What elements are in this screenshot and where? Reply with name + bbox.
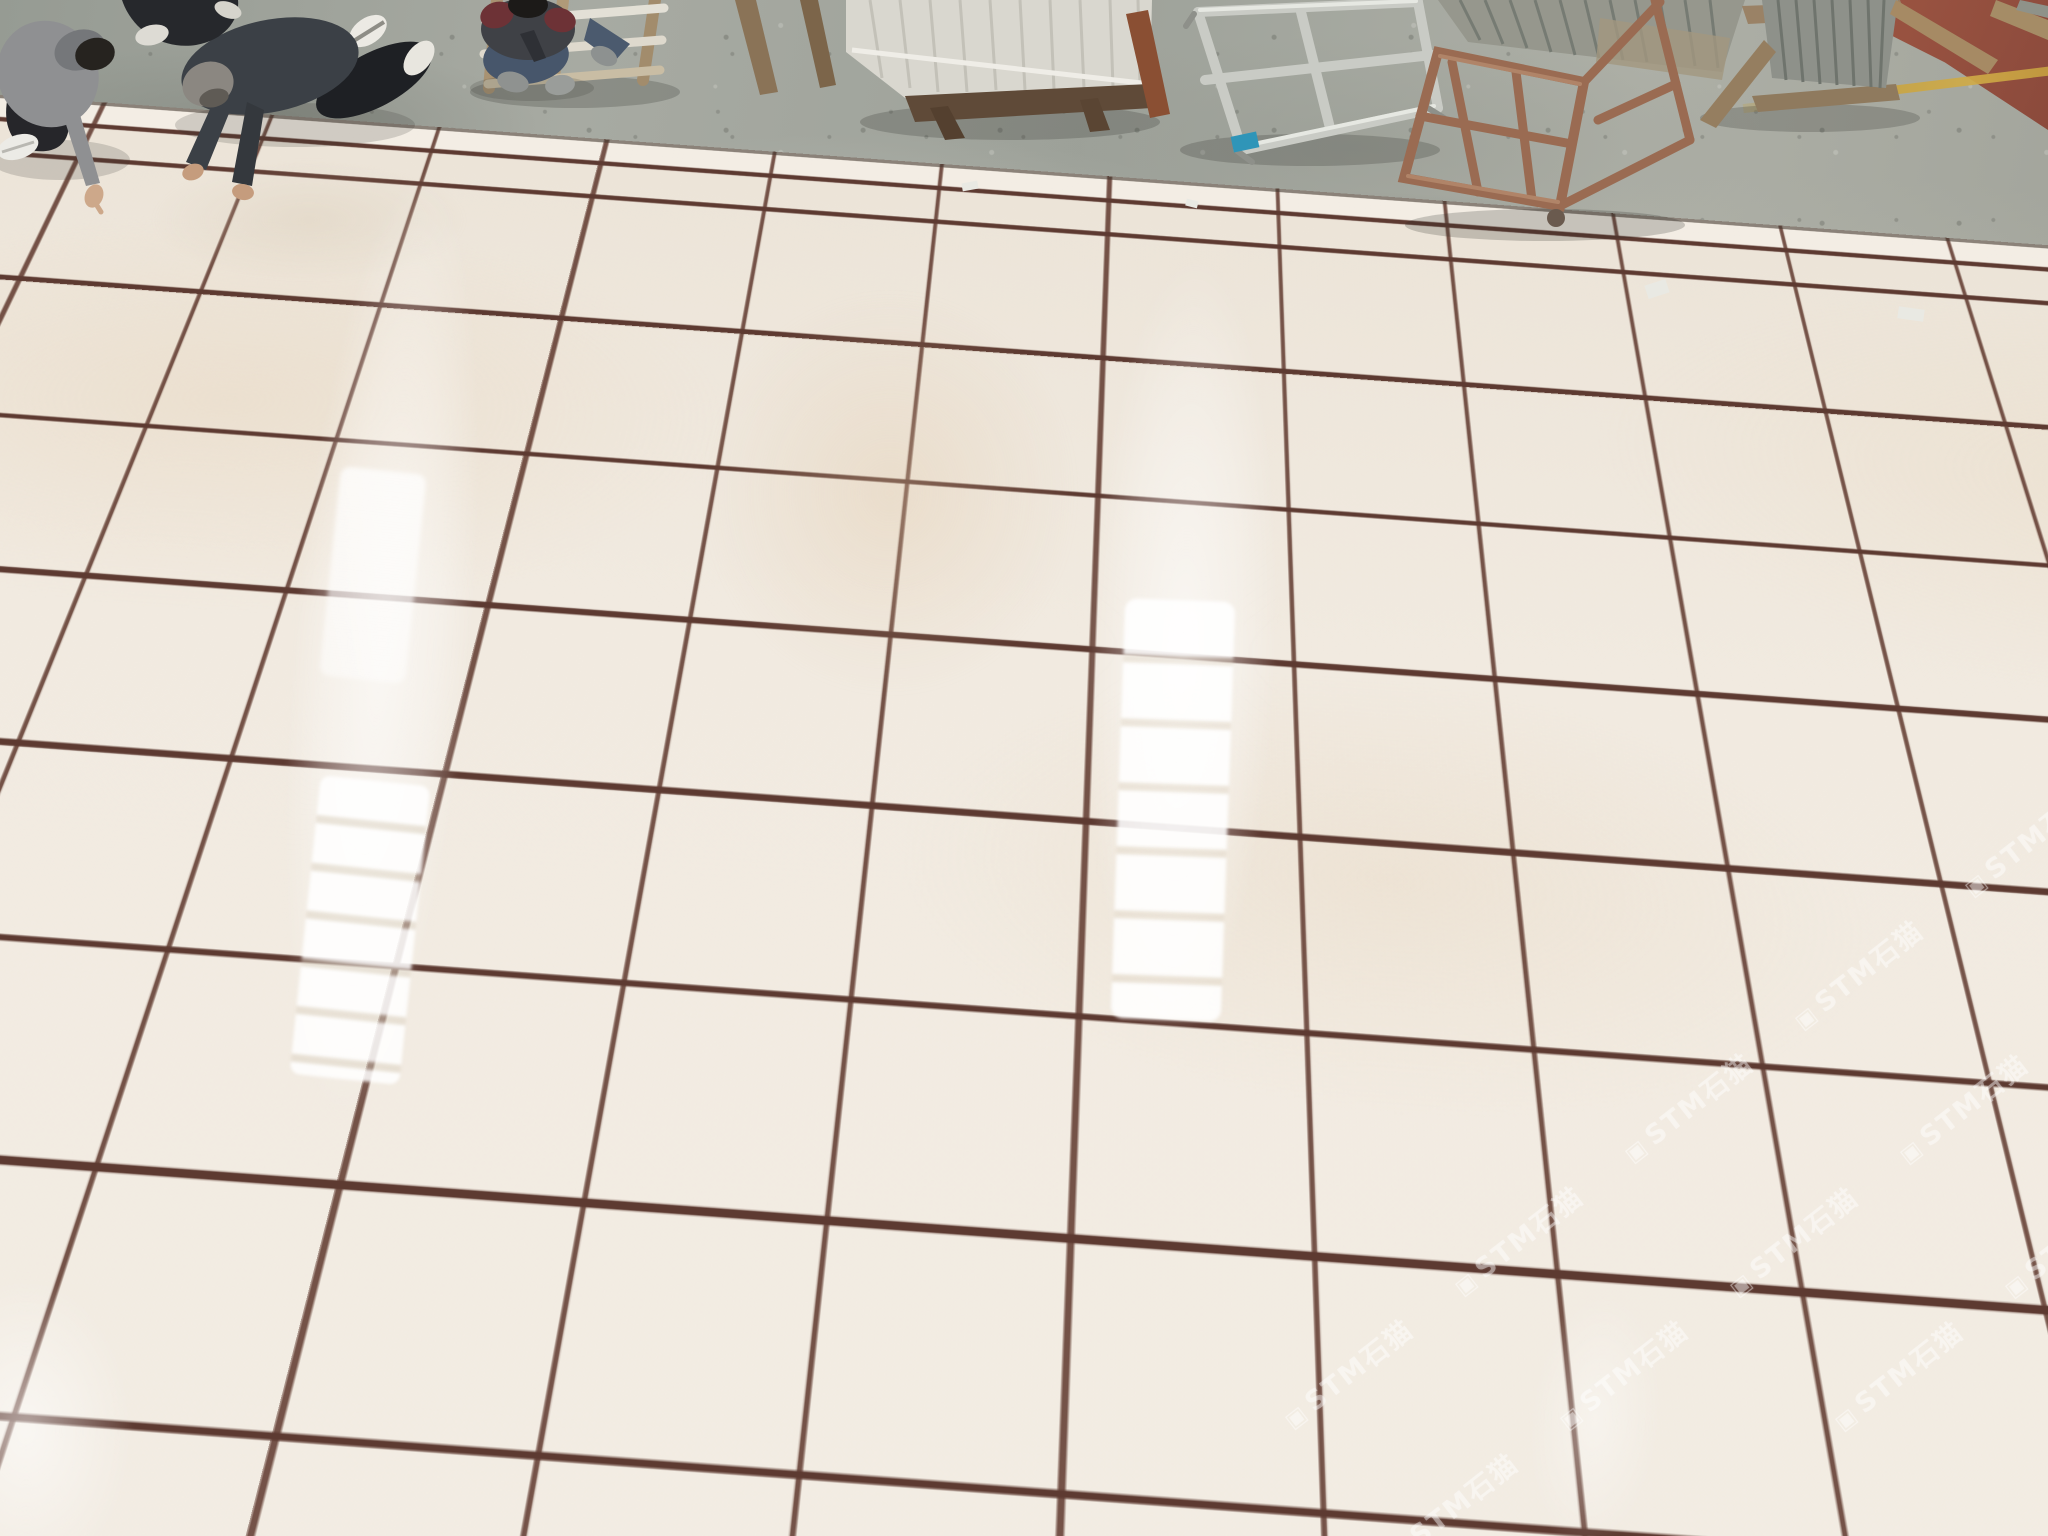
people-layer: [0, 0, 720, 300]
white-slab-stack-a-frame: [735, 0, 1170, 140]
photo-tile-inspection-scene: ▣STM石猫 ▣STM石猫 ▣STM石猫 ▣STM石猫 ▣STM石猫 ▣STM石…: [0, 0, 2048, 1536]
crouching-inspector-gray-hoodie: [0, 4, 118, 212]
white-debris-scraps: [961, 181, 1924, 322]
galvanized-steel-rack: [1186, 1, 1444, 162]
corner-rack-fragment: [1990, 0, 2048, 40]
squatting-worker: [477, 0, 630, 97]
